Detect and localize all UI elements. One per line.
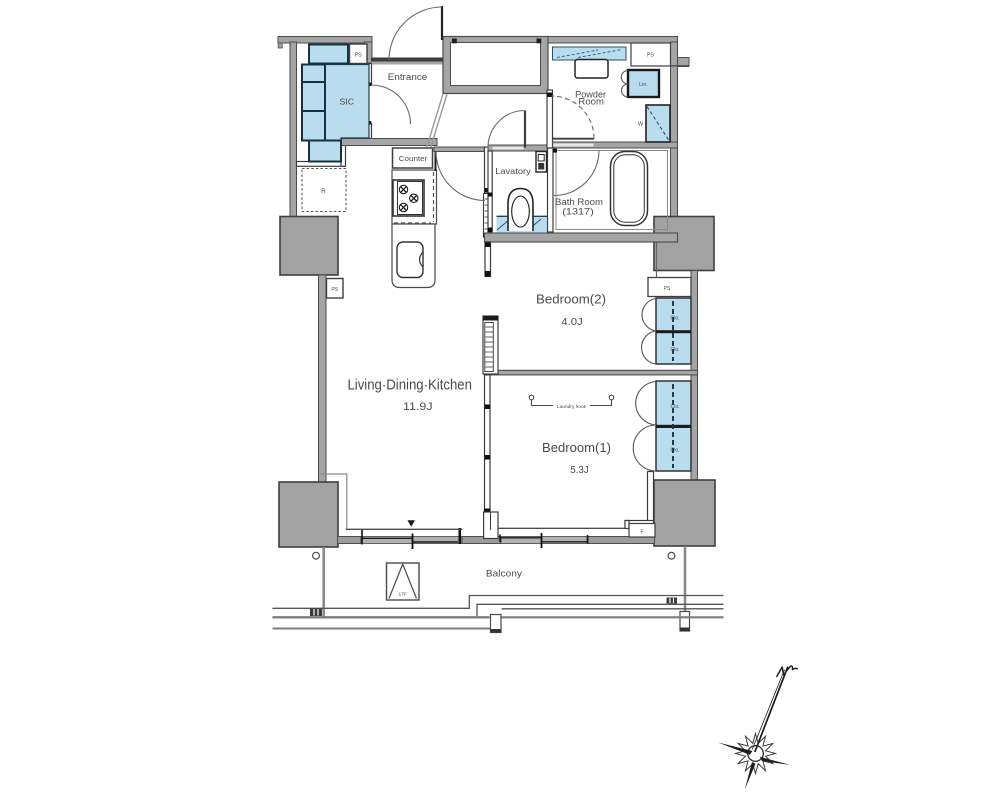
svg-text:Lin.: Lin. [639, 82, 648, 88]
svg-text:17F: 17F [399, 592, 407, 598]
svg-text:Counter: Counter [399, 154, 428, 163]
svg-text:Bedroom(2): Bedroom(2) [536, 293, 606, 307]
svg-text:Clo.: Clo. [670, 316, 679, 322]
svg-text:PS: PS [664, 286, 671, 292]
svg-text:Laundry hook: Laundry hook [557, 404, 587, 410]
svg-text:W: W [638, 122, 644, 128]
svg-text:PS: PS [647, 53, 654, 59]
svg-text:4.0J: 4.0J [561, 317, 583, 328]
svg-text:Clo.: Clo. [670, 404, 679, 410]
svg-text:(1317): (1317) [562, 207, 594, 217]
svg-text:Entrance: Entrance [388, 72, 428, 82]
svg-text:5.3J: 5.3J [570, 465, 589, 476]
svg-text:PS: PS [331, 287, 338, 293]
svg-text:11.9J: 11.9J [403, 401, 433, 413]
svg-text:Bedroom(1): Bedroom(1) [542, 441, 611, 455]
svg-text:Clo.: Clo. [670, 347, 679, 353]
svg-text:Balcony: Balcony [486, 568, 523, 578]
svg-text:Bath Room: Bath Room [555, 197, 603, 207]
svg-text:SIC: SIC [340, 98, 355, 107]
svg-text:R: R [321, 188, 326, 195]
svg-text:Clo.: Clo. [670, 448, 679, 454]
svg-text:Living·Dining·Kitchen: Living·Dining·Kitchen [347, 376, 472, 393]
svg-text:Room: Room [578, 97, 604, 107]
svg-text:Lavatory: Lavatory [495, 167, 532, 176]
svg-text:F: F [640, 530, 643, 536]
svg-text:PS: PS [355, 53, 362, 59]
